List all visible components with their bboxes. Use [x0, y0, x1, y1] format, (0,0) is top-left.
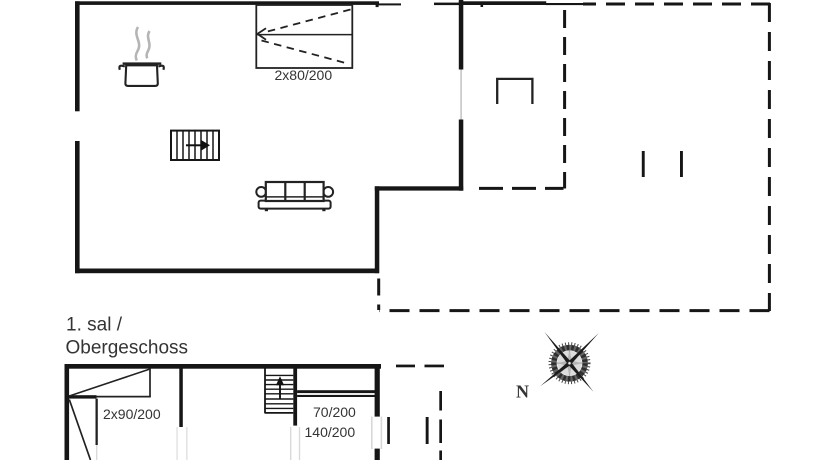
- svg-text:2x80/200: 2x80/200: [275, 67, 333, 83]
- svg-text:1. sal /: 1. sal /: [66, 315, 123, 336]
- svg-text:70/200: 70/200: [313, 404, 356, 420]
- svg-text:N: N: [516, 382, 529, 402]
- svg-text:140/200: 140/200: [305, 424, 356, 440]
- svg-text:Obergeschoss: Obergeschoss: [66, 338, 189, 359]
- svg-text:2x90/200: 2x90/200: [103, 406, 161, 422]
